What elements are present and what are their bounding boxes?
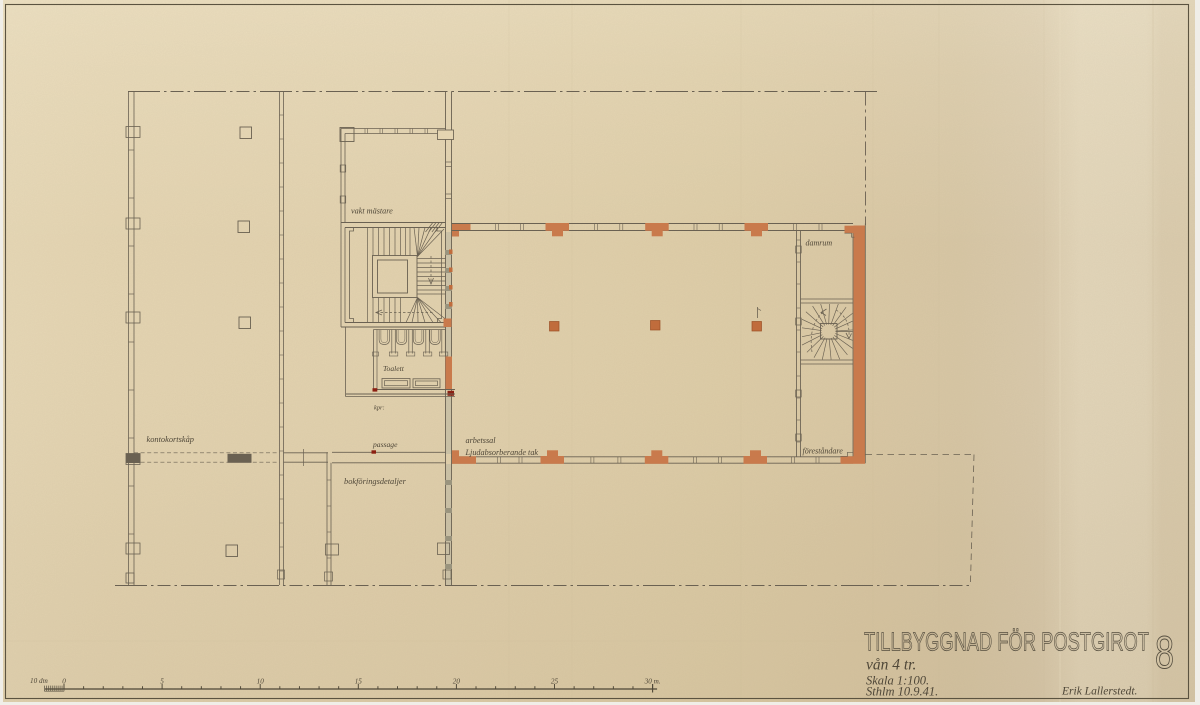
svg-text:vakt mästare: vakt mästare xyxy=(351,207,393,216)
svg-text:10: 10 xyxy=(257,678,265,686)
svg-text:damrum: damrum xyxy=(806,239,833,248)
svg-text:Sthlm 10.9.41.: Sthlm 10.9.41. xyxy=(866,685,938,699)
svg-text:Erik Lallerstedt.: Erik Lallerstedt. xyxy=(1061,686,1137,698)
svg-text:vån 4 tr.: vån 4 tr. xyxy=(866,657,916,674)
svg-text:15: 15 xyxy=(355,678,363,686)
svg-text:Toalett: Toalett xyxy=(383,364,405,373)
svg-text:kpr:: kpr: xyxy=(374,405,385,412)
svg-text:30 m.: 30 m. xyxy=(644,678,661,686)
svg-text:arbetssal: arbetssal xyxy=(466,436,497,445)
svg-text:25: 25 xyxy=(551,678,559,686)
svg-text:föreståndare: föreståndare xyxy=(803,447,844,456)
svg-text:0: 0 xyxy=(62,678,66,686)
svg-text:10 dm: 10 dm xyxy=(30,677,48,685)
svg-text:TILLBYGGNAD FÖR POSTGIROT: TILLBYGGNAD FÖR POSTGIROT xyxy=(864,627,1149,657)
svg-text:kontokortskåp: kontokortskåp xyxy=(147,435,194,444)
svg-text:passage: passage xyxy=(372,440,398,449)
svg-text:bokföringsdetaljer: bokföringsdetaljer xyxy=(344,477,407,486)
svg-text:5: 5 xyxy=(160,678,164,686)
svg-text:20: 20 xyxy=(453,678,461,686)
svg-text:8: 8 xyxy=(1155,627,1174,678)
svg-text:Ljudabsorberande tak: Ljudabsorberande tak xyxy=(465,448,539,457)
